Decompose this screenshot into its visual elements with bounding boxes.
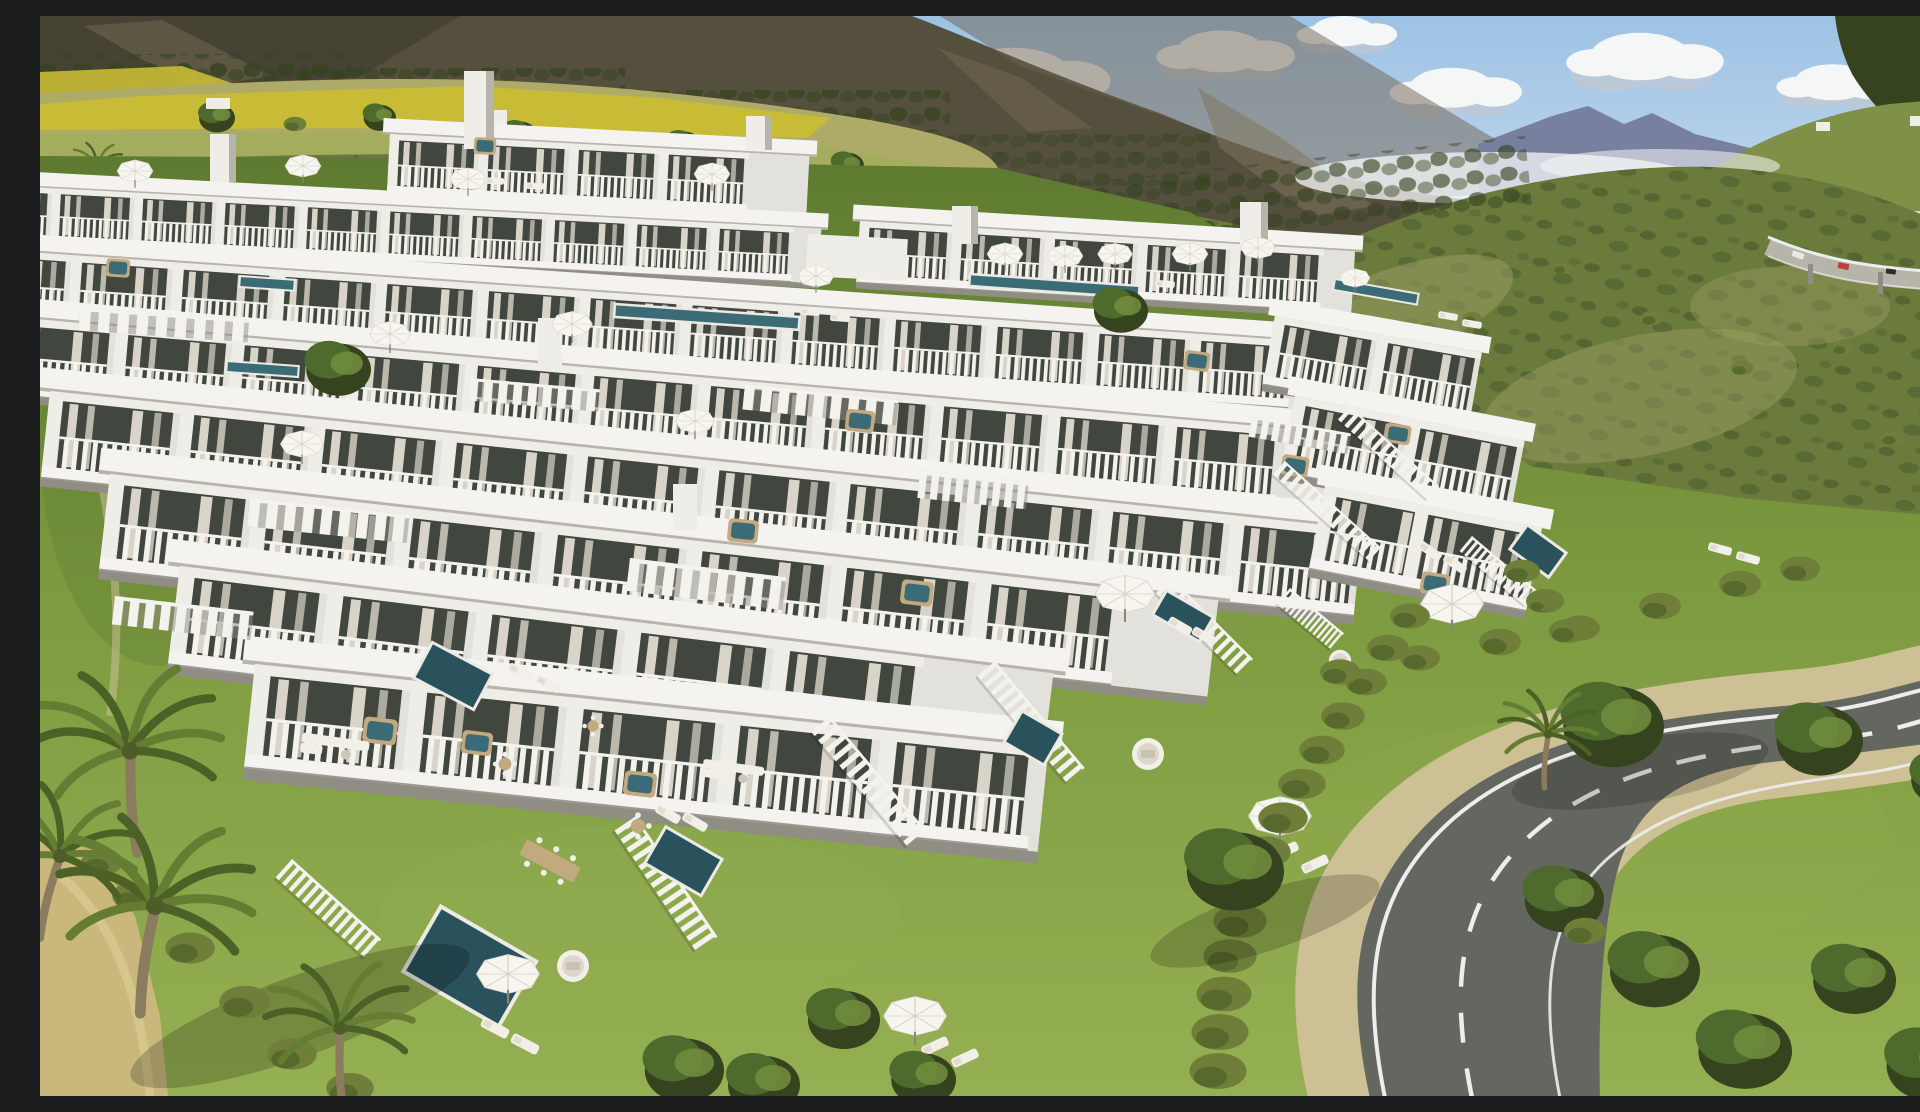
hedge-bush: [1299, 736, 1345, 765]
sun-lounger: [486, 177, 505, 184]
stair-tower-shade: [971, 206, 978, 244]
sun-lounger: [1155, 280, 1175, 288]
hedge-bush: [1196, 977, 1251, 1012]
hot-tub: [105, 258, 130, 278]
distant-house: [1910, 116, 1920, 126]
hedge-bush: [1190, 1053, 1247, 1089]
hedge-bush: [1504, 560, 1540, 583]
hill-bush: [1881, 431, 1904, 445]
hot-tub: [622, 770, 657, 798]
round-daybed: [557, 950, 589, 982]
stair-tower: [673, 484, 697, 530]
stair-tower-shade: [486, 71, 494, 149]
field-bush: [284, 117, 307, 131]
hill-bush: [1553, 262, 1572, 274]
farmhouse: [206, 98, 230, 109]
round-daybed: [1132, 738, 1164, 770]
hedge-bush: [1278, 769, 1326, 799]
hedge-bush: [1719, 571, 1761, 597]
window-module: [544, 214, 629, 277]
hedge-bush: [1549, 619, 1587, 643]
bush: [1564, 918, 1606, 944]
hill-bush: [1641, 311, 1664, 325]
hill-bush: [1832, 341, 1853, 354]
sun-lounger: [526, 182, 545, 189]
viaduct-pier: [1878, 272, 1883, 294]
hedge-bush: [1400, 645, 1440, 670]
distant-house: [1816, 122, 1830, 131]
hot-tub: [899, 579, 934, 607]
aerial-development-render: [40, 16, 1920, 1096]
hot-tub: [460, 730, 493, 757]
viaduct-pier: [1808, 264, 1813, 284]
hedge-bush: [1258, 802, 1307, 833]
hedge-bush: [1639, 593, 1681, 619]
hedge-bush: [1321, 702, 1365, 730]
hedge-bush: [1390, 603, 1430, 628]
sun-lounger: [800, 308, 820, 316]
hot-tub: [1183, 350, 1211, 373]
window-module: [379, 206, 464, 269]
hot-tub: [474, 137, 497, 155]
hedge-bush: [1479, 629, 1521, 655]
sun-lounger: [830, 314, 850, 322]
bush: [1529, 597, 1552, 611]
bush: [219, 986, 270, 1018]
stair-tower-shade: [229, 134, 236, 182]
hot-tub: [844, 409, 875, 434]
hot-tub: [727, 518, 760, 544]
bush: [165, 932, 214, 963]
window-module: [461, 210, 546, 273]
hill-bush: [1731, 361, 1754, 375]
stair-tower-shade: [765, 116, 772, 150]
window-module: [708, 223, 793, 286]
hedge-bush: [1320, 659, 1360, 684]
hedge-bush: [1780, 556, 1820, 581]
hedge-bush: [1192, 1014, 1249, 1050]
window-module: [626, 219, 711, 282]
bush: [267, 1038, 316, 1069]
